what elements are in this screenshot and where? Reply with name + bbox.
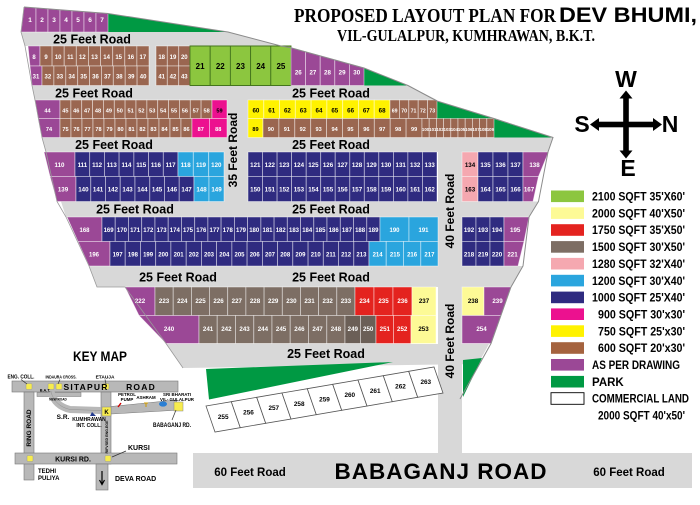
- svg-text:35: 35: [80, 75, 87, 81]
- svg-text:177: 177: [209, 228, 220, 234]
- svg-text:1: 1: [28, 17, 32, 24]
- svg-text:153: 153: [294, 187, 305, 194]
- svg-text:111: 111: [78, 162, 88, 169]
- svg-text:204: 204: [219, 253, 230, 259]
- svg-text:98: 98: [395, 127, 401, 133]
- svg-text:117: 117: [166, 162, 177, 169]
- svg-text:135: 135: [480, 162, 491, 169]
- svg-text:227: 227: [232, 298, 243, 305]
- svg-text:256: 256: [243, 410, 254, 417]
- svg-text:185: 185: [315, 228, 326, 234]
- svg-text:83: 83: [150, 127, 156, 133]
- svg-text:181: 181: [262, 228, 273, 234]
- svg-text:233: 233: [341, 298, 352, 305]
- svg-text:25 Feet Road: 25 Feet Road: [292, 203, 370, 217]
- svg-text:121: 121: [250, 162, 261, 169]
- svg-text:141: 141: [93, 187, 104, 194]
- svg-text:S: S: [574, 111, 589, 137]
- svg-text:86: 86: [183, 127, 189, 133]
- svg-text:173: 173: [157, 228, 168, 234]
- svg-text:RIFVSED ENG.EGE: RIFVSED ENG.EGE: [105, 420, 109, 454]
- svg-text:156: 156: [337, 187, 348, 194]
- svg-text:K: K: [104, 410, 109, 416]
- svg-text:94: 94: [331, 127, 338, 133]
- svg-text:68: 68: [379, 108, 386, 115]
- svg-text:230: 230: [286, 298, 297, 305]
- svg-text:209: 209: [295, 253, 306, 259]
- svg-text:7: 7: [100, 17, 104, 24]
- svg-text:2000 SQFT 40'x50': 2000 SQFT 40'x50': [598, 411, 685, 423]
- svg-text:69: 69: [392, 109, 398, 115]
- svg-text:206: 206: [250, 253, 261, 259]
- svg-text:224: 224: [177, 298, 188, 305]
- svg-text:25 Feet Road: 25 Feet Road: [96, 203, 174, 217]
- svg-text:240: 240: [164, 326, 175, 333]
- svg-text:29: 29: [339, 70, 346, 77]
- svg-text:134: 134: [465, 162, 476, 169]
- svg-text:84: 84: [161, 127, 168, 133]
- svg-text:54: 54: [160, 109, 167, 115]
- svg-text:220: 220: [492, 252, 503, 259]
- svg-text:139: 139: [58, 187, 69, 194]
- svg-text:259: 259: [319, 397, 330, 404]
- svg-text:142: 142: [108, 187, 119, 194]
- svg-text:243: 243: [239, 326, 250, 333]
- svg-text:116: 116: [151, 162, 162, 169]
- svg-text:182: 182: [276, 228, 287, 234]
- svg-text:253: 253: [418, 326, 429, 333]
- svg-text:244: 244: [258, 326, 269, 333]
- svg-text:BABAGANJ RD.: BABAGANJ RD.: [153, 423, 191, 429]
- svg-text:92: 92: [300, 127, 306, 133]
- svg-text:149: 149: [211, 187, 222, 194]
- svg-text:25 Feet Road: 25 Feet Road: [292, 271, 370, 285]
- svg-text:17: 17: [140, 55, 147, 61]
- svg-text:248: 248: [331, 326, 342, 333]
- svg-text:172: 172: [143, 228, 154, 234]
- svg-text:25 Feet Road: 25 Feet Road: [75, 138, 153, 152]
- svg-text:201: 201: [174, 253, 185, 259]
- svg-text:192: 192: [464, 227, 475, 234]
- svg-text:1280 SQFT 32'X40': 1280 SQFT 32'X40': [592, 259, 685, 271]
- svg-text:198: 198: [128, 253, 139, 259]
- svg-text:176: 176: [196, 228, 207, 234]
- svg-text:166: 166: [510, 187, 521, 194]
- svg-text:3: 3: [52, 17, 56, 24]
- svg-text:48: 48: [95, 109, 101, 115]
- svg-text:N: N: [662, 111, 679, 137]
- svg-text:77: 77: [84, 127, 90, 133]
- svg-text:260: 260: [344, 392, 355, 399]
- svg-text:SITAPUR: SITAPUR: [63, 382, 108, 392]
- svg-text:211: 211: [326, 253, 336, 259]
- svg-text:750 SQFT 25'x30': 750 SQFT 25'x30': [598, 326, 685, 338]
- svg-text:112: 112: [92, 162, 103, 169]
- svg-text:25: 25: [276, 62, 285, 71]
- svg-text:KEY MAP: KEY MAP: [73, 349, 127, 364]
- svg-text:BABAGANJ ROAD: BABAGANJ ROAD: [334, 459, 547, 484]
- svg-text:25 Feet Road: 25 Feet Road: [287, 347, 365, 361]
- svg-text:6: 6: [88, 17, 92, 24]
- svg-text:INT. COLL.: INT. COLL.: [76, 423, 102, 429]
- svg-text:95: 95: [347, 127, 353, 133]
- svg-text:189: 189: [368, 228, 379, 234]
- svg-text:247: 247: [312, 326, 323, 333]
- svg-text:191: 191: [418, 228, 429, 234]
- svg-text:261: 261: [370, 388, 381, 395]
- svg-text:E: E: [620, 155, 635, 181]
- svg-text:37: 37: [104, 75, 111, 81]
- svg-text:231: 231: [304, 298, 315, 305]
- svg-text:165: 165: [495, 187, 506, 194]
- svg-text:180: 180: [249, 228, 260, 234]
- svg-text:16: 16: [127, 55, 134, 61]
- svg-text:1000 SQFT 25'X40': 1000 SQFT 25'X40': [592, 293, 685, 305]
- svg-text:110: 110: [55, 162, 66, 169]
- svg-text:215: 215: [390, 253, 401, 259]
- svg-text:161: 161: [410, 187, 421, 194]
- svg-text:10: 10: [55, 55, 62, 61]
- svg-text:150: 150: [250, 187, 261, 194]
- svg-text:118: 118: [181, 162, 192, 169]
- svg-text:W: W: [615, 66, 637, 92]
- svg-text:119: 119: [196, 162, 207, 169]
- svg-text:195: 195: [510, 227, 521, 234]
- svg-text:242: 242: [221, 326, 232, 333]
- svg-text:184: 184: [302, 228, 313, 234]
- svg-text:145: 145: [152, 187, 163, 194]
- svg-text:KURSI RD.: KURSI RD.: [55, 457, 91, 464]
- svg-text:174: 174: [170, 228, 181, 234]
- svg-text:130: 130: [381, 162, 392, 169]
- svg-text:238: 238: [468, 298, 479, 305]
- svg-text:46: 46: [73, 109, 79, 115]
- svg-text:78: 78: [95, 127, 101, 133]
- svg-text:126: 126: [323, 162, 334, 169]
- svg-text:87: 87: [198, 127, 204, 133]
- svg-text:148: 148: [196, 187, 207, 194]
- svg-text:205: 205: [234, 253, 245, 259]
- svg-text:190: 190: [389, 228, 400, 234]
- svg-text:AS PER DRAWING: AS PER DRAWING: [592, 360, 680, 372]
- svg-text:252: 252: [397, 326, 408, 333]
- svg-text:245: 245: [276, 326, 287, 333]
- svg-text:144: 144: [137, 187, 148, 194]
- svg-text:170: 170: [117, 228, 128, 234]
- svg-text:125: 125: [308, 162, 319, 169]
- svg-text:38: 38: [116, 75, 123, 81]
- svg-text:136: 136: [495, 162, 506, 169]
- svg-text:VIL-GULALPUR, KUMHRAWAN, B.K.T: VIL-GULALPUR, KUMHRAWAN, B.K.T.: [337, 26, 595, 45]
- svg-text:127: 127: [337, 162, 348, 169]
- svg-text:85: 85: [172, 127, 178, 133]
- svg-text:34: 34: [68, 75, 75, 81]
- svg-text:25 Feet Road: 25 Feet Road: [292, 138, 370, 152]
- svg-text:203: 203: [204, 253, 215, 259]
- svg-text:88: 88: [215, 127, 221, 133]
- svg-text:71: 71: [411, 109, 417, 115]
- svg-text:239: 239: [492, 298, 503, 305]
- svg-text:60 Feet Road: 60 Feet Road: [214, 467, 286, 479]
- svg-text:178: 178: [223, 228, 234, 234]
- svg-text:42: 42: [170, 75, 177, 81]
- svg-text:122: 122: [265, 162, 276, 169]
- svg-text:27: 27: [309, 70, 316, 77]
- svg-text:147: 147: [181, 187, 192, 194]
- svg-text:25 Feet Road: 25 Feet Road: [292, 87, 370, 101]
- svg-text:40 Feet Road: 40 Feet Road: [443, 174, 457, 249]
- svg-text:258: 258: [294, 401, 305, 408]
- svg-text:249: 249: [348, 326, 359, 333]
- svg-text:30: 30: [353, 70, 360, 77]
- svg-text:152: 152: [279, 187, 290, 194]
- svg-text:202: 202: [189, 253, 200, 259]
- svg-text:70: 70: [401, 109, 407, 115]
- svg-text:DEVA ROAD: DEVA ROAD: [115, 476, 156, 483]
- svg-text:162: 162: [425, 187, 436, 194]
- svg-text:74: 74: [46, 127, 53, 133]
- svg-text:40: 40: [140, 75, 147, 81]
- svg-text:257: 257: [268, 405, 279, 412]
- svg-text:128: 128: [352, 162, 363, 169]
- svg-text:171: 171: [130, 228, 141, 234]
- svg-text:COMMERCIAL LAND: COMMERCIAL LAND: [592, 394, 689, 406]
- svg-text:131: 131: [396, 162, 407, 169]
- svg-text:4: 4: [64, 17, 68, 24]
- svg-text:96: 96: [363, 127, 369, 133]
- svg-text:183: 183: [289, 228, 300, 234]
- svg-text:207: 207: [265, 253, 276, 259]
- svg-text:900 SQFT 30'x30': 900 SQFT 30'x30': [598, 309, 685, 321]
- svg-text:219: 219: [478, 252, 489, 259]
- svg-text:210: 210: [311, 253, 322, 259]
- svg-text:22: 22: [216, 62, 225, 71]
- svg-text:194: 194: [492, 227, 503, 234]
- svg-text:5: 5: [76, 17, 80, 24]
- svg-text:52: 52: [138, 109, 144, 115]
- svg-text:25 Feet Road: 25 Feet Road: [53, 33, 131, 47]
- svg-text:229: 229: [268, 298, 279, 305]
- svg-text:236: 236: [397, 298, 408, 305]
- svg-text:196: 196: [89, 253, 100, 259]
- svg-text:113: 113: [107, 162, 118, 169]
- svg-text:65: 65: [331, 108, 338, 115]
- svg-text:18: 18: [158, 55, 165, 61]
- svg-text:157: 157: [352, 187, 363, 194]
- svg-text:67: 67: [363, 108, 370, 115]
- svg-text:21: 21: [196, 62, 205, 71]
- svg-text:32: 32: [45, 75, 52, 81]
- svg-text:11: 11: [67, 55, 74, 61]
- svg-text:129: 129: [366, 162, 377, 169]
- svg-text:1750 SQFT 35'X50': 1750 SQFT 35'X50': [592, 225, 685, 237]
- svg-text:61: 61: [268, 108, 275, 115]
- svg-text:164: 164: [480, 187, 491, 194]
- svg-text:114: 114: [122, 162, 133, 169]
- svg-text:TEDHI: TEDHI: [38, 469, 56, 475]
- svg-text:262: 262: [395, 384, 406, 391]
- svg-text:132: 132: [410, 162, 421, 169]
- svg-text:44: 44: [44, 109, 51, 115]
- svg-text:50: 50: [117, 109, 123, 115]
- svg-text:26: 26: [295, 70, 302, 77]
- svg-text:167: 167: [524, 187, 535, 194]
- svg-text:226: 226: [213, 298, 224, 305]
- svg-text:218: 218: [464, 252, 475, 259]
- svg-text:246: 246: [294, 326, 305, 333]
- svg-text:25 Feet Road: 25 Feet Road: [55, 87, 133, 101]
- svg-text:90: 90: [268, 127, 274, 133]
- svg-text:193: 193: [478, 227, 489, 234]
- svg-text:20: 20: [181, 55, 188, 61]
- svg-text:120: 120: [211, 162, 222, 169]
- svg-text:212: 212: [341, 253, 352, 259]
- svg-text:60: 60: [252, 108, 259, 115]
- svg-text:250: 250: [363, 326, 374, 333]
- svg-text:213: 213: [356, 253, 367, 259]
- svg-text:97: 97: [379, 127, 385, 133]
- svg-text:138: 138: [529, 162, 540, 169]
- svg-text:82: 82: [139, 127, 145, 133]
- svg-text:99: 99: [411, 127, 417, 133]
- svg-text:146: 146: [167, 187, 178, 194]
- svg-text:80: 80: [117, 127, 123, 133]
- svg-text:43: 43: [181, 75, 188, 81]
- svg-text:143: 143: [122, 187, 133, 194]
- svg-text:64: 64: [316, 108, 323, 115]
- svg-text:VIL- GULALPUR: VIL- GULALPUR: [160, 397, 195, 402]
- svg-text:ASHRAM: ASHRAM: [136, 395, 156, 400]
- svg-text:188: 188: [355, 228, 366, 234]
- svg-text:133: 133: [425, 162, 436, 169]
- svg-text:115: 115: [136, 162, 147, 169]
- svg-text:222: 222: [135, 298, 146, 305]
- svg-text:55: 55: [171, 109, 177, 115]
- svg-text:24: 24: [256, 62, 265, 71]
- svg-text:123: 123: [279, 162, 290, 169]
- svg-text:75: 75: [62, 127, 68, 133]
- svg-text:40 Feet Road: 40 Feet Road: [443, 304, 457, 379]
- svg-text:163: 163: [465, 187, 476, 194]
- svg-text:186: 186: [329, 228, 340, 234]
- svg-text:25 Feet Road: 25 Feet Road: [139, 271, 217, 285]
- svg-text:2100 SQFT 35'X60': 2100 SQFT 35'X60': [592, 192, 685, 204]
- svg-text:15: 15: [115, 55, 122, 61]
- svg-text:197: 197: [113, 253, 124, 259]
- svg-text:199: 199: [143, 253, 154, 259]
- svg-text:237: 237: [419, 298, 430, 305]
- svg-text:263: 263: [420, 379, 431, 386]
- svg-text:63: 63: [300, 108, 307, 115]
- svg-text:124: 124: [294, 162, 305, 169]
- svg-text:93: 93: [315, 127, 321, 133]
- svg-text:217: 217: [424, 253, 435, 259]
- svg-text:155: 155: [323, 187, 334, 194]
- svg-text:76: 76: [73, 127, 79, 133]
- svg-text:160: 160: [396, 187, 407, 194]
- svg-text:255: 255: [218, 414, 229, 421]
- svg-text:47: 47: [84, 109, 90, 115]
- svg-text:19: 19: [170, 55, 177, 61]
- svg-text:45: 45: [62, 109, 68, 115]
- svg-text:60 Feet Road: 60 Feet Road: [593, 467, 665, 479]
- svg-text:KURSI: KURSI: [128, 445, 150, 452]
- svg-text:PUMP: PUMP: [121, 397, 134, 402]
- svg-text:221: 221: [507, 252, 518, 259]
- svg-text:208: 208: [280, 253, 291, 259]
- svg-text:232: 232: [323, 298, 334, 305]
- svg-text:79: 79: [106, 127, 112, 133]
- svg-text:600 SQFT 20'x30': 600 SQFT 20'x30': [598, 343, 685, 355]
- svg-text:241: 241: [203, 326, 214, 333]
- svg-text:1500 SQFT 30'X50': 1500 SQFT 30'X50': [592, 242, 685, 254]
- svg-text:S.R.: S.R.: [57, 414, 70, 421]
- svg-text:137: 137: [510, 162, 521, 169]
- svg-text:154: 154: [308, 187, 319, 194]
- svg-text:RING ROAD: RING ROAD: [26, 409, 33, 447]
- svg-text:ROAD: ROAD: [126, 382, 156, 392]
- svg-text:23: 23: [236, 62, 245, 71]
- svg-text:PULIYA: PULIYA: [38, 476, 60, 482]
- svg-text:225: 225: [195, 298, 206, 305]
- svg-text:53: 53: [149, 109, 155, 115]
- svg-text:NEW ROAD: NEW ROAD: [49, 398, 67, 402]
- svg-text:234: 234: [359, 298, 370, 305]
- svg-text:81: 81: [128, 127, 134, 133]
- svg-text:28: 28: [324, 70, 331, 77]
- svg-text:89: 89: [252, 127, 258, 133]
- svg-text:140: 140: [78, 187, 89, 194]
- svg-text:59: 59: [216, 109, 222, 115]
- svg-text:72: 72: [420, 109, 426, 115]
- svg-text:31: 31: [33, 75, 40, 81]
- svg-text:41: 41: [158, 75, 165, 81]
- svg-text:158: 158: [366, 187, 377, 194]
- svg-text:36: 36: [92, 75, 99, 81]
- svg-text:14: 14: [103, 55, 110, 61]
- svg-text:PARK: PARK: [592, 377, 624, 389]
- svg-text:168: 168: [79, 228, 90, 234]
- svg-text:39: 39: [128, 75, 135, 81]
- svg-text:66: 66: [347, 108, 354, 115]
- svg-text:56: 56: [182, 109, 188, 115]
- svg-text:2000 SQFT 40'X50': 2000 SQFT 40'X50': [592, 208, 685, 220]
- svg-text:1200 SQFT 30'X40': 1200 SQFT 30'X40': [592, 276, 685, 288]
- svg-text:159: 159: [381, 187, 392, 194]
- svg-text:235: 235: [378, 298, 389, 305]
- svg-text:B.A.T.: B.A.T.: [40, 389, 51, 393]
- svg-text:51: 51: [127, 109, 133, 115]
- svg-text:57: 57: [193, 109, 199, 115]
- svg-text:228: 228: [250, 298, 261, 305]
- svg-text:35 Feet Road: 35 Feet Road: [226, 113, 240, 188]
- svg-text:2: 2: [40, 17, 44, 24]
- svg-text:109: 109: [487, 127, 495, 132]
- svg-text:187: 187: [342, 228, 353, 234]
- svg-text:62: 62: [284, 108, 291, 115]
- svg-text:58: 58: [203, 109, 209, 115]
- svg-text:251: 251: [380, 326, 391, 333]
- svg-text:33: 33: [56, 75, 63, 81]
- svg-text:223: 223: [159, 298, 170, 305]
- svg-text:214: 214: [373, 253, 384, 259]
- svg-text:73: 73: [429, 109, 435, 115]
- svg-text:12: 12: [79, 55, 86, 61]
- svg-text:151: 151: [265, 187, 276, 194]
- svg-text:179: 179: [236, 228, 247, 234]
- svg-text:PROPOSED LAYOUT PLAN FOR DEV B: PROPOSED LAYOUT PLAN FOR DEV BHUMI,: [294, 4, 697, 27]
- svg-text:200: 200: [158, 253, 169, 259]
